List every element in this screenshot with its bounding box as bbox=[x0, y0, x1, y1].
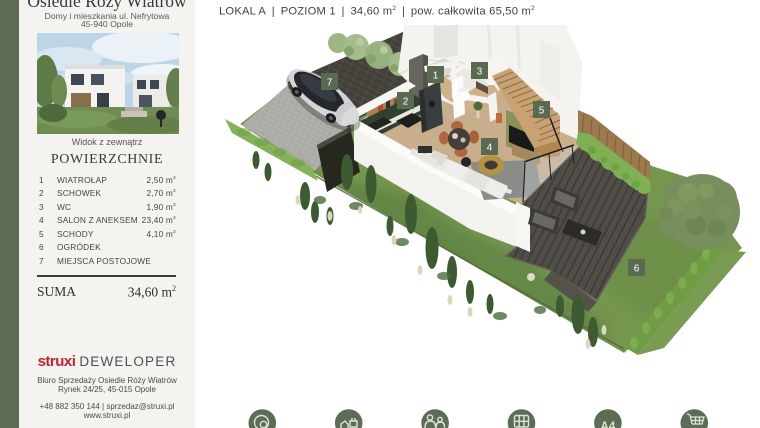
svg-text:3: 3 bbox=[477, 67, 483, 78]
svg-text:A4: A4 bbox=[601, 421, 616, 428]
svg-text:2: 2 bbox=[403, 97, 409, 108]
svg-text:4: 4 bbox=[487, 143, 493, 154]
svg-text:6: 6 bbox=[634, 264, 640, 275]
svg-text:7: 7 bbox=[327, 78, 333, 89]
svg-text:1: 1 bbox=[433, 71, 439, 82]
svg-text:5: 5 bbox=[539, 106, 545, 117]
